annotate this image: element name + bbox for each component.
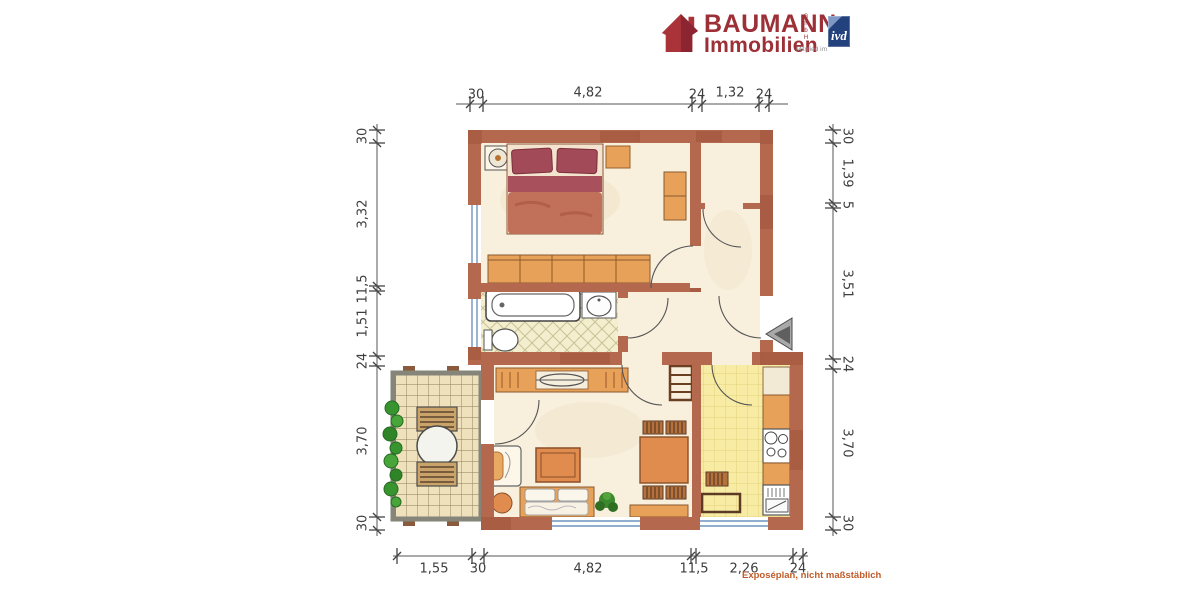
nightstand xyxy=(606,146,630,168)
dim-left-2: 3,32 xyxy=(356,200,371,229)
dim-top-4: 1,32 xyxy=(716,86,745,101)
kitchen-cabinet xyxy=(763,463,790,485)
dining-chair xyxy=(643,421,663,434)
dim-right-6: 3,70 xyxy=(840,429,855,458)
balcony xyxy=(383,366,481,526)
brand-logo: BAUMANN Immobilien GmbH Mitglied im ivd xyxy=(660,8,860,58)
balcony-chair xyxy=(417,462,457,486)
dim-bottom-1: 1,55 xyxy=(420,562,449,577)
double-bed xyxy=(507,144,603,234)
bench xyxy=(630,505,688,517)
pouf xyxy=(492,493,512,513)
sofa xyxy=(520,487,594,517)
wardrobe xyxy=(488,255,650,283)
balcony-table xyxy=(417,426,457,466)
dim-left-5: 24 xyxy=(356,353,371,370)
coffee-table xyxy=(536,448,580,482)
sideboard xyxy=(496,368,628,392)
dim-left-7: 30 xyxy=(356,515,371,532)
dining-chair xyxy=(666,486,686,499)
corridor-floor xyxy=(628,292,760,352)
toilet xyxy=(484,329,518,351)
stove xyxy=(763,429,790,463)
dim-left-3: 11,5 xyxy=(356,275,371,304)
kitchen-window xyxy=(700,517,768,530)
bedroom-window xyxy=(468,205,481,263)
dim-right-4: 3,51 xyxy=(840,270,855,299)
brand-name: BAUMANN xyxy=(704,12,837,36)
dim-right-1: 30 xyxy=(840,128,855,145)
dim-top-5: 24 xyxy=(756,88,773,103)
dim-bottom-2: 30 xyxy=(470,562,487,577)
dim-left-6: 3,70 xyxy=(356,427,371,456)
ivd-badge: ivd xyxy=(828,16,850,47)
dim-left-1: 30 xyxy=(356,128,371,145)
dim-top-1: 30 xyxy=(468,88,485,103)
dim-right-5: 24 xyxy=(840,356,855,373)
dim-left-4: 1,51 xyxy=(356,309,371,338)
kitchen-cabinet xyxy=(763,395,790,429)
dim-top-2: 4,82 xyxy=(574,86,603,101)
brand-legal-suffix: GmbH xyxy=(803,14,809,42)
living-room-window xyxy=(552,517,640,530)
member-label: Mitglied im xyxy=(793,46,827,53)
dining-chair xyxy=(666,421,686,434)
bathroom-window xyxy=(468,299,481,347)
kitchen-cabinet xyxy=(763,367,790,395)
dim-right-2: 1,39 xyxy=(840,159,855,188)
dim-top-3: 24 xyxy=(689,88,706,103)
plan-disclaimer: Exposéplan, nicht maßstäblich xyxy=(742,570,881,581)
house-icon xyxy=(660,10,698,54)
dim-right-3: 5 xyxy=(840,201,855,209)
dim-bottom-4: 11,5 xyxy=(680,562,709,577)
dresser xyxy=(664,172,686,220)
dim-right-7: 30 xyxy=(840,515,855,532)
balcony-door-opening xyxy=(481,400,494,444)
dining-chair xyxy=(643,486,663,499)
dining-table xyxy=(640,437,688,483)
bathtub xyxy=(486,289,580,321)
kitchen-sink xyxy=(763,485,790,515)
washbasin xyxy=(582,292,616,318)
stool xyxy=(706,472,728,486)
dim-bottom-3: 4,82 xyxy=(574,562,603,577)
